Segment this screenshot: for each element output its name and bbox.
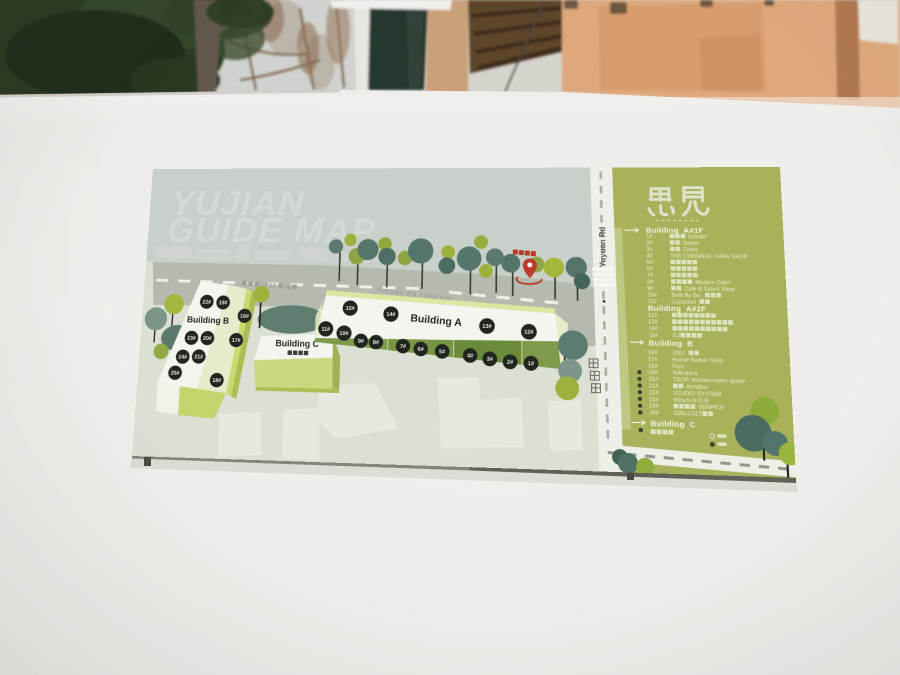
svg-text:Grinder: Grinder bbox=[688, 234, 708, 241]
svg-text:20#: 20# bbox=[648, 376, 658, 383]
svg-text:23#: 23# bbox=[649, 396, 659, 403]
svg-text:Fern: Fern bbox=[672, 363, 685, 370]
svg-text:9#: 9# bbox=[647, 285, 654, 292]
svg-text:1#: 1# bbox=[646, 234, 653, 241]
svg-text:21#: 21# bbox=[649, 383, 659, 390]
svg-text:5#: 5# bbox=[647, 259, 654, 266]
svg-text:THE CONNIEHL CAKE SHOP: THE CONNIEHL CAKE SHOP bbox=[670, 253, 748, 260]
svg-text:18#: 18# bbox=[212, 377, 221, 384]
svg-text:19#: 19# bbox=[219, 300, 228, 307]
svg-text:14#: 14# bbox=[648, 325, 658, 332]
svg-text:24#: 24# bbox=[178, 354, 187, 361]
svg-text:10#: 10# bbox=[339, 330, 348, 337]
svg-text:Yuyuan Rd: Yuyuan Rd bbox=[599, 227, 608, 268]
svg-text:2#: 2# bbox=[507, 359, 514, 366]
svg-text:26#: 26# bbox=[649, 410, 659, 417]
svg-text:Building B: Building B bbox=[649, 340, 694, 349]
svg-text:13#: 13# bbox=[648, 319, 658, 326]
svg-text:22#: 22# bbox=[649, 389, 659, 396]
svg-text:Building C: Building C bbox=[275, 338, 319, 349]
svg-text:7#: 7# bbox=[647, 272, 654, 279]
svg-text:SENPICE: SENPICE bbox=[698, 404, 725, 412]
svg-text:STUDIO SYSTEM: STUDIO SYSTEM bbox=[673, 390, 721, 398]
svg-text:20#: 20# bbox=[203, 336, 212, 343]
svg-text:Cafe & Salect Shop: Cafe & Salect Shop bbox=[684, 286, 735, 293]
svg-text:24#: 24# bbox=[649, 403, 659, 410]
svg-text:Both By Bo: Both By Bo bbox=[671, 292, 700, 299]
svg-text:6#: 6# bbox=[418, 346, 425, 353]
svg-text:Building B: Building B bbox=[187, 315, 230, 326]
svg-text:GJ: GJ bbox=[672, 333, 680, 340]
svg-text:Onibs: Onibs bbox=[683, 247, 699, 254]
svg-text:17#: 17# bbox=[648, 356, 658, 363]
svg-text:Building C: Building C bbox=[651, 420, 696, 430]
svg-text:WineS.N.O.B: WineS.N.O.B bbox=[673, 397, 708, 405]
svg-text:21#: 21# bbox=[194, 354, 203, 361]
svg-text:6#: 6# bbox=[647, 266, 654, 273]
svg-text:1#: 1# bbox=[528, 361, 535, 368]
svg-text:GUIDE MAP: GUIDE MAP bbox=[166, 211, 377, 250]
svg-text:3#: 3# bbox=[487, 356, 494, 363]
svg-text:12#: 12# bbox=[524, 329, 534, 336]
svg-text:15#: 15# bbox=[648, 332, 658, 339]
svg-text:11#: 11# bbox=[321, 326, 330, 333]
svg-text:22#: 22# bbox=[202, 299, 211, 306]
svg-text:JISU: JISU bbox=[672, 350, 685, 357]
svg-text:GIRLCULT: GIRLCULT bbox=[674, 410, 703, 418]
svg-text:4#: 4# bbox=[467, 353, 474, 360]
svg-text:10#: 10# bbox=[647, 292, 657, 299]
svg-text:16#: 16# bbox=[240, 313, 249, 320]
svg-text:5#: 5# bbox=[439, 349, 446, 356]
svg-text:14#: 14# bbox=[386, 311, 395, 318]
svg-text:17#: 17# bbox=[232, 337, 241, 344]
svg-text:19#: 19# bbox=[648, 369, 658, 376]
svg-text:25#: 25# bbox=[171, 370, 180, 377]
svg-text:Building A#1F: Building A#1F bbox=[646, 227, 704, 235]
svg-text:16#: 16# bbox=[648, 350, 658, 357]
svg-text:23#: 23# bbox=[187, 335, 196, 342]
svg-text:13#: 13# bbox=[482, 323, 492, 330]
svg-text:9#: 9# bbox=[358, 338, 365, 345]
svg-text:7#: 7# bbox=[400, 343, 407, 350]
svg-text:48: 48 bbox=[284, 284, 292, 291]
svg-text:Zenter: Zenter bbox=[683, 240, 700, 247]
svg-text:8#: 8# bbox=[647, 279, 654, 286]
svg-text:15#: 15# bbox=[346, 306, 355, 313]
svg-text:%Arabica: %Arabica bbox=[673, 370, 699, 378]
svg-text:Modern Oden: Modern Oden bbox=[695, 279, 731, 286]
svg-text:Homie Barber Shop: Homie Barber Shop bbox=[672, 357, 724, 365]
svg-text:terrafius: terrafius bbox=[686, 384, 708, 392]
svg-text:4#: 4# bbox=[646, 253, 653, 260]
svg-text:3#: 3# bbox=[646, 246, 653, 253]
svg-text:2#: 2# bbox=[646, 240, 653, 247]
svg-text:18#: 18# bbox=[648, 363, 658, 370]
svg-text:8#: 8# bbox=[373, 340, 380, 347]
svg-text:12#: 12# bbox=[648, 312, 658, 319]
